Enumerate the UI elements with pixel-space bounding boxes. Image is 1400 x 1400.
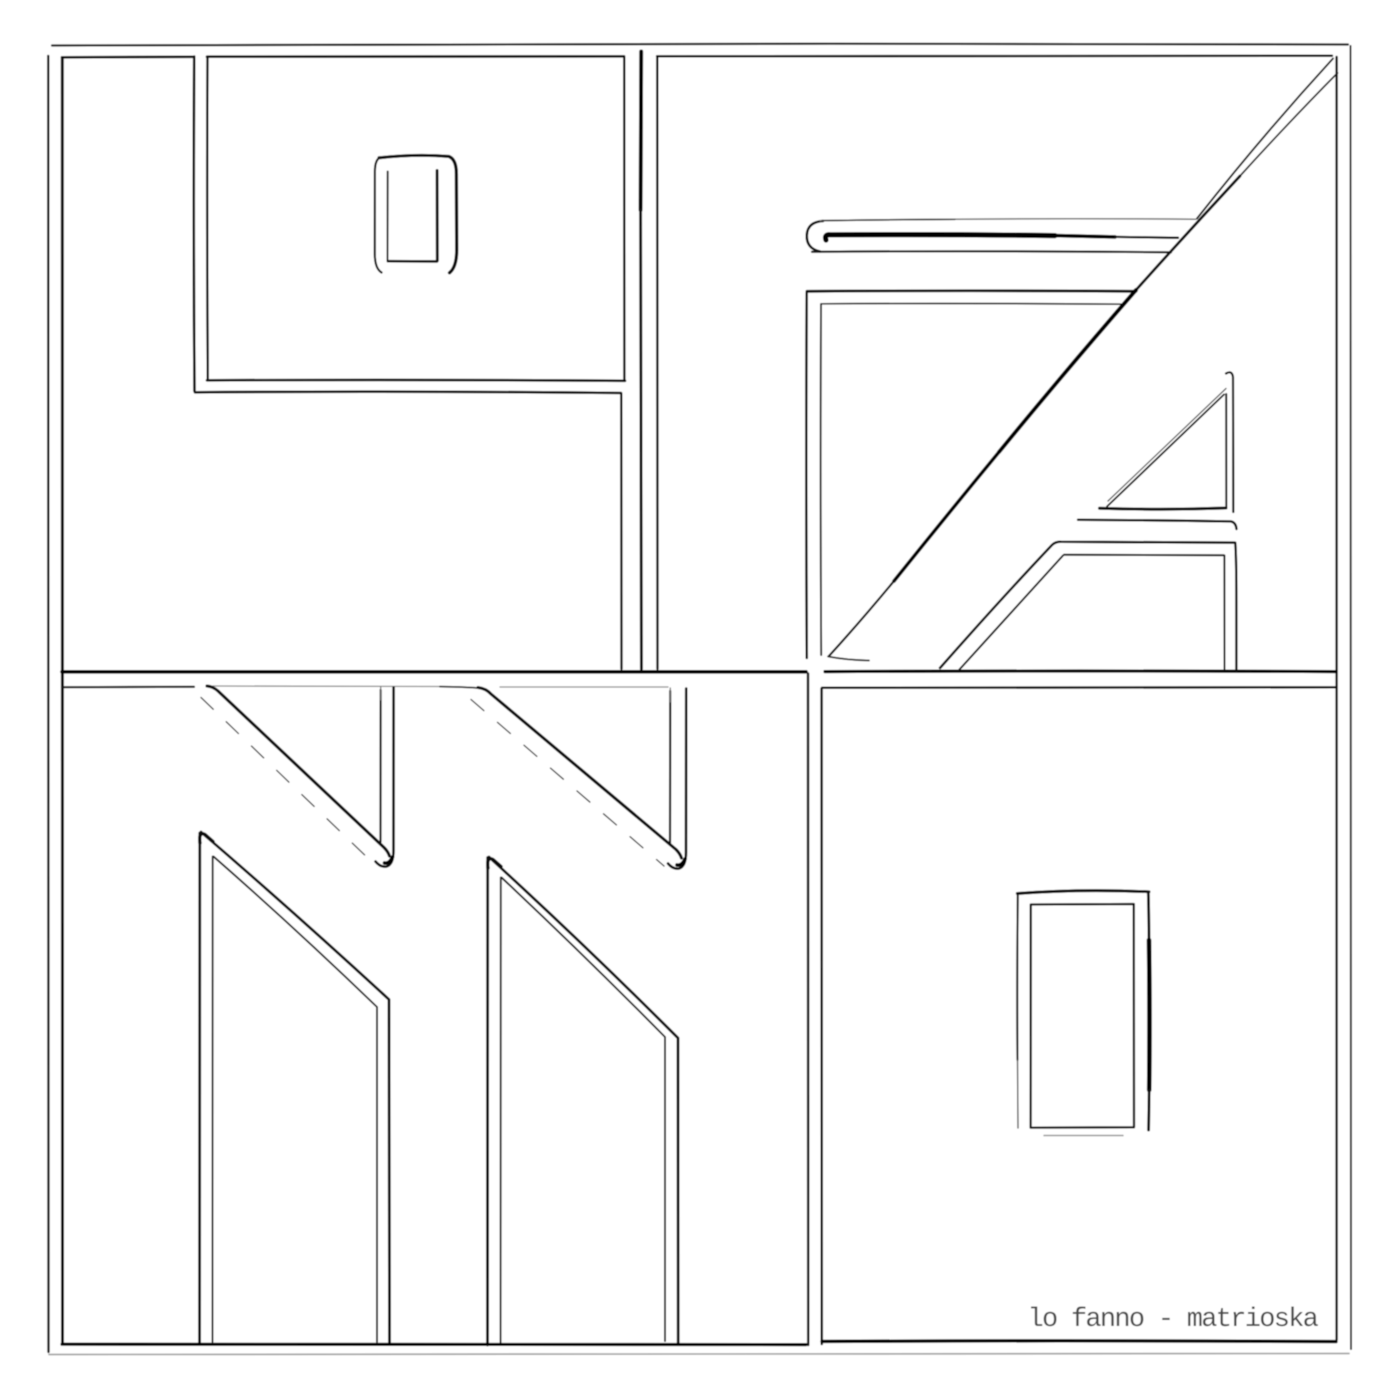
svg-text:lo fanno - matrioska: lo fanno - matrioska — [1028, 1305, 1319, 1335]
